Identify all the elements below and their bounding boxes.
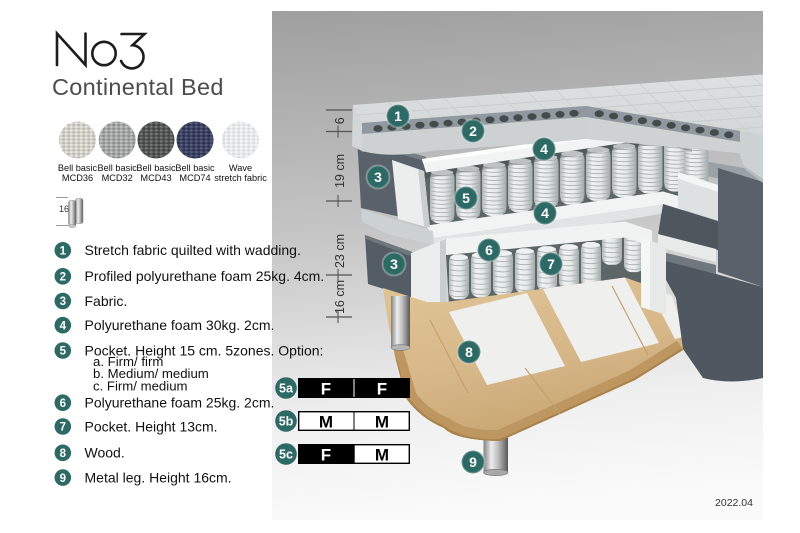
svg-text:5b: 5b <box>279 415 294 429</box>
svg-text:Polyurethane foam 25kg. 2cm.: Polyurethane foam 25kg. 2cm. <box>85 395 275 411</box>
svg-text:Fabric.: Fabric. <box>85 293 128 309</box>
svg-text:MCD36: MCD36 <box>62 173 93 183</box>
svg-text:F: F <box>321 380 331 399</box>
svg-text:Pocket. Height 13cm.: Pocket. Height 13cm. <box>85 418 218 434</box>
svg-text:Bell basic: Bell basic <box>175 163 215 173</box>
svg-text:Bell basic: Bell basic <box>136 163 176 173</box>
svg-text:23 cm: 23 cm <box>333 234 347 268</box>
svg-text:2: 2 <box>469 123 477 139</box>
svg-text:5: 5 <box>462 190 470 206</box>
svg-text:8: 8 <box>465 344 473 360</box>
svg-text:M: M <box>375 413 389 432</box>
svg-text:Polyurethane foam 30kg. 2cm.: Polyurethane foam 30kg. 2cm. <box>85 317 275 333</box>
svg-text:5c: 5c <box>279 448 293 462</box>
svg-text:F: F <box>377 380 387 399</box>
svg-text:5a: 5a <box>279 382 294 396</box>
svg-text:Stretch fabric quilted with wa: Stretch fabric quilted with wadding. <box>85 242 301 258</box>
svg-text:7: 7 <box>547 256 555 272</box>
svg-text:Bell basic: Bell basic <box>98 163 138 173</box>
svg-text:4: 4 <box>540 141 548 157</box>
svg-text:6: 6 <box>485 242 493 258</box>
svg-text:2: 2 <box>60 271 66 283</box>
svg-text:1: 1 <box>60 245 67 257</box>
svg-text:3: 3 <box>390 256 398 272</box>
svg-text:3: 3 <box>60 296 66 308</box>
svg-text:M: M <box>319 413 333 432</box>
svg-text:Bell basic: Bell basic <box>58 163 98 173</box>
svg-text:Continental Bed: Continental Bed <box>52 74 224 100</box>
svg-text:9: 9 <box>469 454 477 470</box>
svg-text:16: 16 <box>59 204 69 214</box>
svg-text:19 cm: 19 cm <box>333 154 347 188</box>
svg-text:F: F <box>321 446 331 465</box>
svg-text:MCD74: MCD74 <box>179 173 210 183</box>
svg-text:4: 4 <box>60 320 67 332</box>
svg-text:9: 9 <box>60 473 66 485</box>
svg-text:Wave: Wave <box>229 163 252 173</box>
svg-text:Profiled polyurethane foam 25k: Profiled polyurethane foam 25kg. 4cm. <box>85 268 325 284</box>
svg-text:5: 5 <box>60 346 67 358</box>
svg-text:1: 1 <box>394 108 402 124</box>
svg-text:MCD32: MCD32 <box>102 173 133 183</box>
svg-text:2022.04: 2022.04 <box>715 497 753 509</box>
svg-text:c. Firm/ medium: c. Firm/ medium <box>93 379 188 394</box>
svg-text:Metal leg. Height 16cm.: Metal leg. Height 16cm. <box>85 469 232 485</box>
svg-text:16 cm: 16 cm <box>333 280 347 314</box>
svg-text:stretch fabric: stretch fabric <box>214 173 267 183</box>
svg-text:MCD43: MCD43 <box>140 173 171 183</box>
svg-text:7: 7 <box>60 422 66 434</box>
svg-text:6: 6 <box>60 398 66 410</box>
svg-text:3: 3 <box>374 169 382 185</box>
svg-text:M: M <box>375 446 389 465</box>
svg-text:Wood.: Wood. <box>85 445 125 461</box>
svg-text:6: 6 <box>333 117 347 124</box>
svg-text:4: 4 <box>541 205 549 221</box>
svg-text:8: 8 <box>60 448 67 460</box>
